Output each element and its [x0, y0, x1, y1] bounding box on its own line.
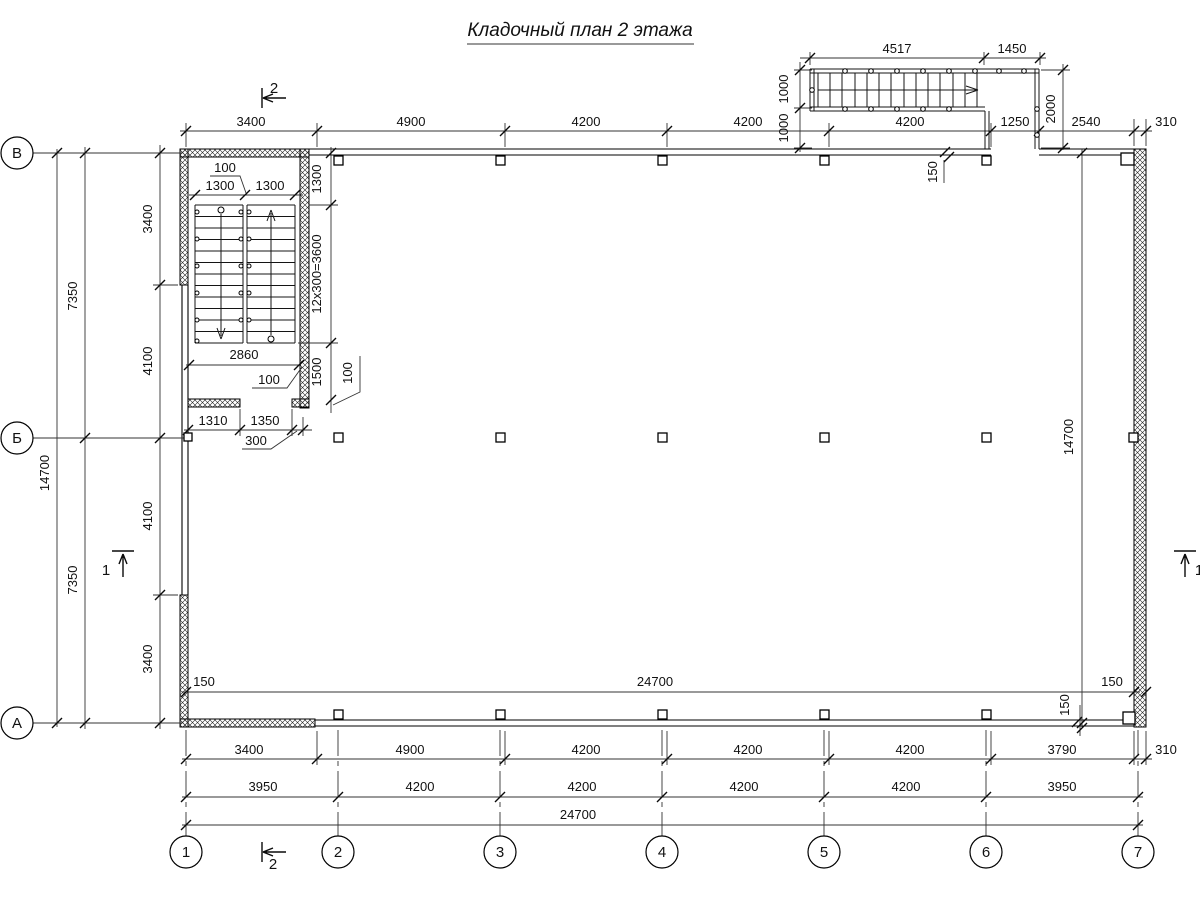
- dim-inner-150-left: 150: [193, 674, 215, 689]
- external-stair: [810, 69, 1040, 149]
- dim-top-6: 2540: [1072, 114, 1101, 129]
- stairwell-east-wall: [300, 149, 309, 408]
- dim-row2-3: 4200: [730, 779, 759, 794]
- dim-row2-0: 3950: [249, 779, 278, 794]
- dim-sw-gap100: 100: [214, 160, 236, 175]
- dim-stair-2000: 2000: [1043, 95, 1058, 124]
- dim-row2-4: 4200: [892, 779, 921, 794]
- dim-wall-150-bottom: 150: [1057, 694, 1072, 716]
- dim-top-3: 4200: [734, 114, 763, 129]
- dim-inner-24700: 24700: [637, 674, 673, 689]
- corner-pier-top-right: [1121, 153, 1134, 165]
- dim-top-7: 310: [1155, 114, 1177, 129]
- leader-lines: [210, 160, 1080, 736]
- axis-label-2: 2: [334, 844, 342, 861]
- dim-stair-4517: 4517: [883, 41, 912, 56]
- axis-label-row-A: А: [12, 715, 22, 732]
- dimension-labels: 3400 4900 4200 4200 4200 1250 2540 310 4…: [37, 41, 1177, 822]
- dim-sw-1300b: 1300: [256, 178, 285, 193]
- axis-label-5: 5: [820, 844, 828, 861]
- dim-sw-1500: 1500: [309, 358, 324, 387]
- masonry-plan-svg: Кладочный план 2 этажа: [0, 0, 1200, 900]
- axis-label-1: 1: [182, 844, 190, 861]
- wall-bottom-left: [180, 719, 315, 727]
- dim-left-7350b: 7350: [65, 566, 80, 595]
- dim-left-3400b: 3400: [140, 645, 155, 674]
- axis-label-3: 3: [496, 844, 504, 861]
- section-2-bottom-label: 2: [269, 856, 277, 873]
- dim-row1-3: 4200: [734, 742, 763, 757]
- dim-top-1: 4900: [397, 114, 426, 129]
- dim-top-2: 4200: [572, 114, 601, 129]
- axis-label-7: 7: [1134, 844, 1142, 861]
- axis-label-6: 6: [982, 844, 990, 861]
- dim-top-5: 1250: [1001, 114, 1030, 129]
- stairwell-south-wall-b: [292, 399, 309, 407]
- wall-left-bottom: [180, 595, 188, 727]
- dim-row2-5: 3950: [1048, 779, 1077, 794]
- internal-stair: [195, 205, 295, 343]
- axis-bubbles: В Б А 1 2 3 4 5 6 7: [1, 137, 1154, 868]
- section-2-top-label: 2: [270, 80, 278, 97]
- dim-row1-6: 310: [1155, 742, 1177, 757]
- dim-row2-2: 4200: [568, 779, 597, 794]
- dim-sw-2860: 2860: [230, 347, 259, 362]
- dim-row3-24700: 24700: [560, 807, 596, 822]
- dim-sw-1300a: 1300: [206, 178, 235, 193]
- dim-left-7350a: 7350: [65, 282, 80, 311]
- dim-left-14700: 14700: [37, 455, 52, 491]
- dim-left-3400a: 3400: [140, 205, 155, 234]
- dim-left-4100a: 4100: [140, 347, 155, 376]
- dim-sw-first-1300: 1300: [309, 165, 324, 194]
- stair-flights: [195, 205, 295, 343]
- dim-sw-300: 300: [245, 433, 267, 448]
- dim-row1-5: 3790: [1048, 742, 1077, 757]
- dim-sw-100a: 100: [258, 372, 280, 387]
- dim-sw-1350: 1350: [251, 413, 280, 428]
- section-1-left-arrow: [112, 551, 134, 577]
- dim-stair-1450: 1450: [998, 41, 1027, 56]
- wall-top-left: [180, 149, 309, 157]
- drawing-sheet: Кладочный план 2 этажа: [0, 0, 1200, 900]
- axis-lines: [33, 153, 1138, 837]
- dim-sw-100b: 100: [340, 362, 355, 384]
- dim-sw-1310: 1310: [199, 413, 228, 428]
- dim-row1-2: 4200: [572, 742, 601, 757]
- stair-posts: [195, 207, 274, 343]
- dim-top-4: 4200: [896, 114, 925, 129]
- stairwell-south-wall-a: [188, 399, 240, 407]
- dim-row1-4: 4200: [896, 742, 925, 757]
- drawing-title: Кладочный план 2 этажа: [467, 20, 692, 41]
- columns: [184, 153, 1138, 724]
- dim-row2-1: 4200: [406, 779, 435, 794]
- dim-row1-0: 3400: [235, 742, 264, 757]
- section-1-right-label: 1: [1195, 562, 1200, 579]
- dim-inner-150-right: 150: [1101, 674, 1123, 689]
- corner-pier-bottom-right: [1123, 712, 1135, 724]
- axis-label-4: 4: [658, 844, 666, 861]
- dim-sw-run: 12x300=3600: [309, 234, 324, 313]
- dim-top-0: 3400: [237, 114, 266, 129]
- section-marks: 2 2 1 1: [102, 80, 1200, 873]
- wall-left-top: [180, 149, 188, 285]
- dim-stair-1000a: 1000: [776, 75, 791, 104]
- section-1-right-arrow: [1174, 551, 1196, 577]
- dim-wall-150-top: 150: [925, 161, 940, 183]
- axis-label-row-B: Б: [12, 430, 22, 447]
- axis-label-row-V: В: [12, 145, 22, 162]
- dim-row1-1: 4900: [396, 742, 425, 757]
- dim-left-4100b: 4100: [140, 502, 155, 531]
- section-1-left-label: 1: [102, 562, 110, 579]
- dim-stair-1000b: 1000: [776, 114, 791, 143]
- dim-right-14700: 14700: [1061, 419, 1076, 455]
